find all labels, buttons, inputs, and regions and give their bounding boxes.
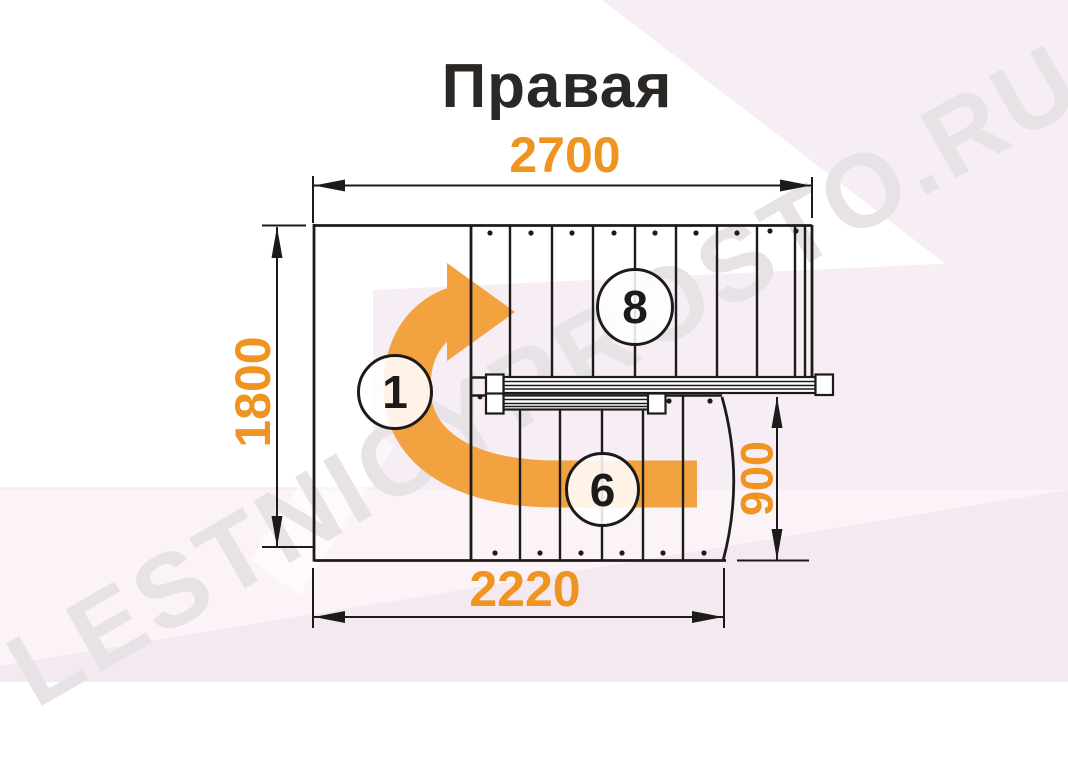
dimension-label-bottom: 2220 xyxy=(375,564,675,614)
step-circle-8: 8 xyxy=(596,268,674,346)
dimension-label-top: 2700 xyxy=(415,130,715,180)
dimension-label-left: 1800 xyxy=(228,312,278,472)
direction-arrowhead-icon xyxy=(447,263,515,361)
step-circle-6: 6 xyxy=(565,452,640,527)
handrail-upper xyxy=(486,375,833,396)
step-circle-1: 1 xyxy=(357,354,433,430)
handrail-lower xyxy=(486,394,666,414)
page-title: Правая xyxy=(307,56,807,118)
handrail-post-cap xyxy=(486,394,504,414)
dimension-top-2700 xyxy=(313,176,812,223)
handrail-post-cap xyxy=(648,394,666,414)
dimension-label-right: 900 xyxy=(735,409,780,549)
handrail-post-cap xyxy=(816,375,834,396)
handrail-post-cap xyxy=(486,375,504,396)
